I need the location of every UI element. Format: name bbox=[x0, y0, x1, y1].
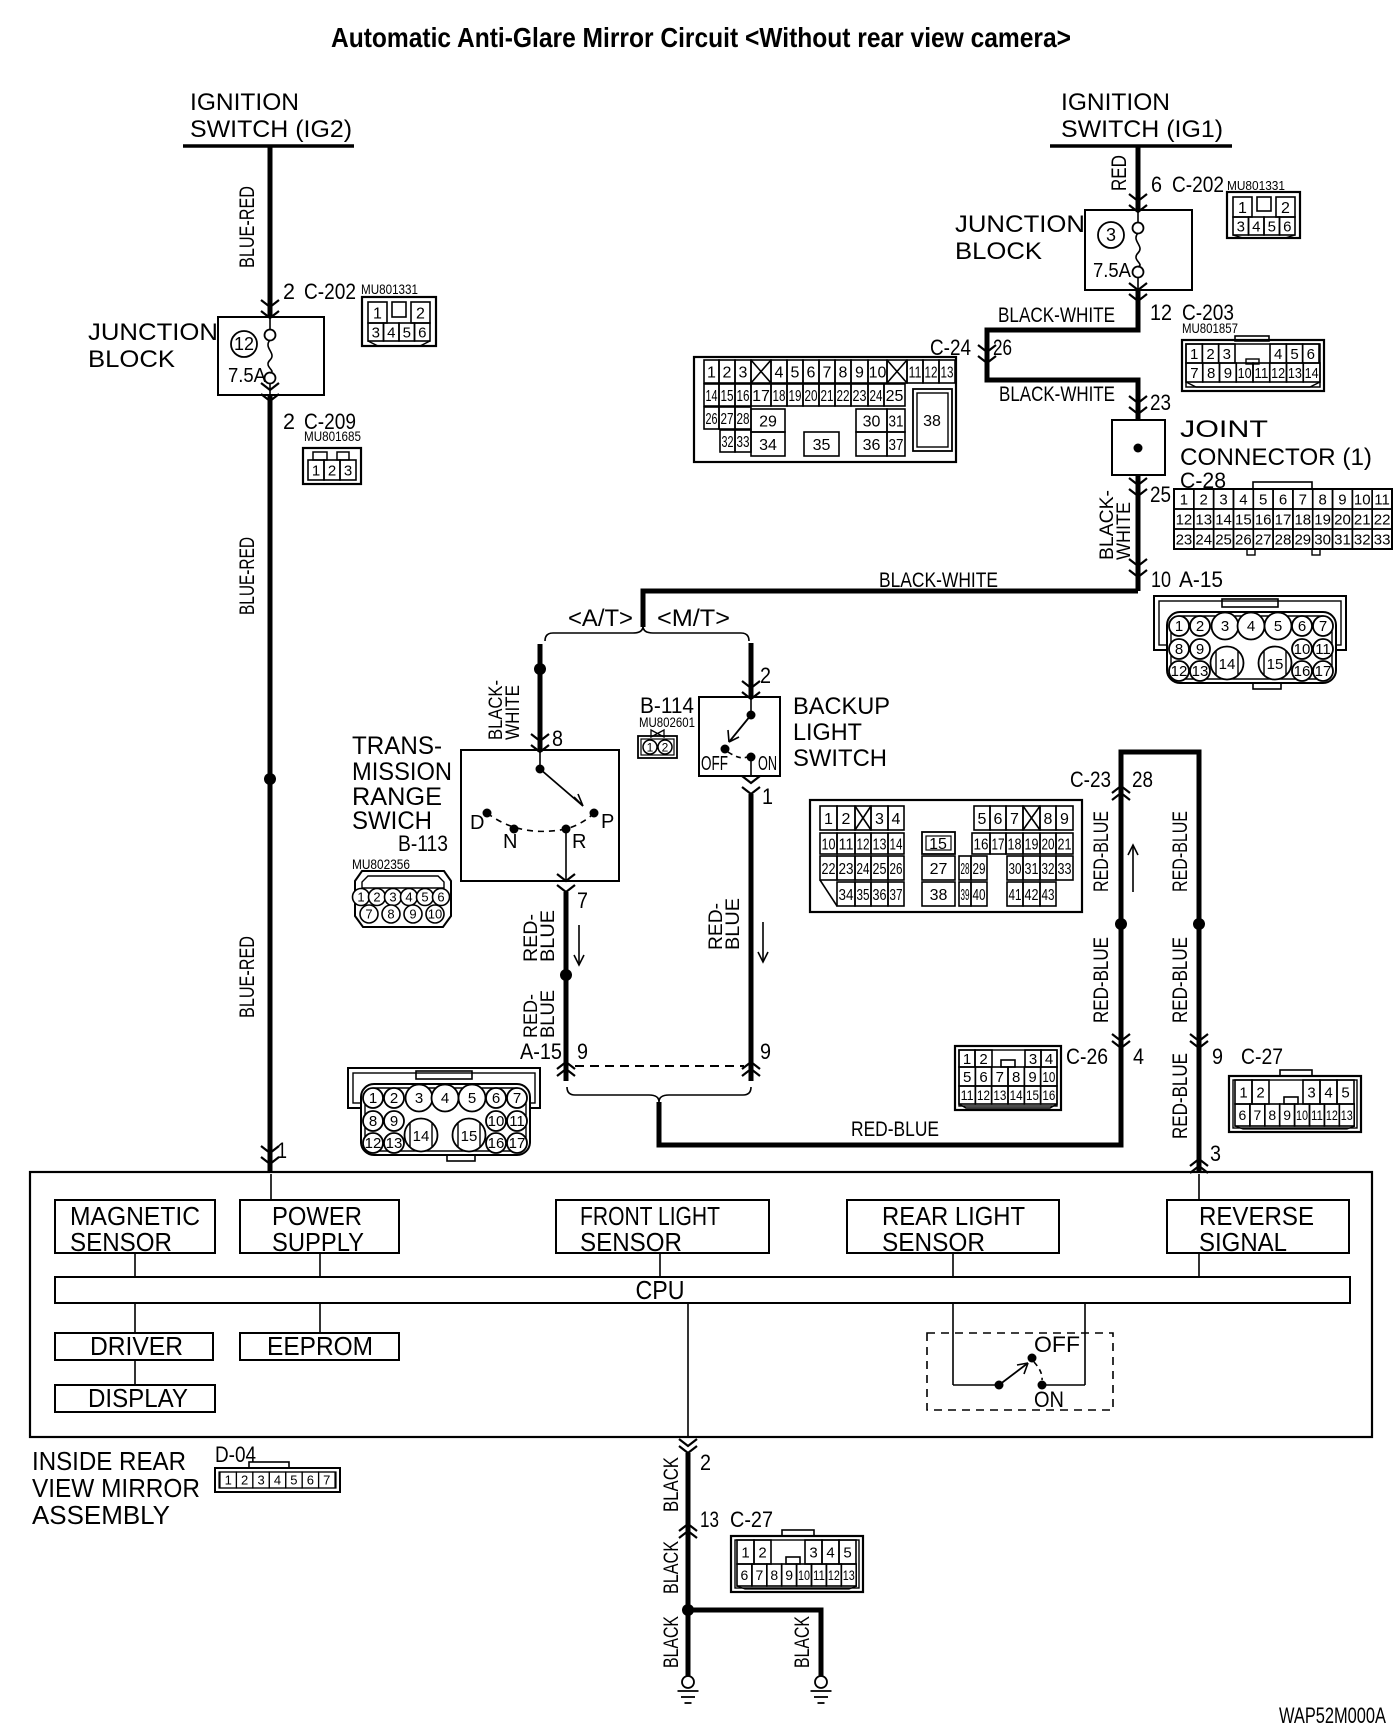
svg-text:8: 8 bbox=[770, 1567, 778, 1583]
svg-text:7: 7 bbox=[513, 1090, 521, 1107]
svg-text:11: 11 bbox=[1315, 641, 1331, 658]
svg-text:WAP52M000A: WAP52M000A bbox=[1279, 1703, 1386, 1728]
svg-text:1: 1 bbox=[357, 890, 364, 905]
svg-text:7.5A: 7.5A bbox=[1093, 260, 1132, 282]
svg-text:13: 13 bbox=[1192, 663, 1209, 680]
svg-text:23: 23 bbox=[1176, 531, 1193, 548]
svg-text:24: 24 bbox=[857, 861, 870, 878]
svg-text:1: 1 bbox=[225, 1473, 232, 1488]
svg-text:6: 6 bbox=[1279, 491, 1287, 508]
svg-text:12: 12 bbox=[1150, 300, 1172, 325]
svg-text:2: 2 bbox=[1196, 618, 1204, 635]
svg-text:8: 8 bbox=[552, 726, 563, 751]
svg-text:MU801331: MU801331 bbox=[1227, 178, 1285, 193]
svg-text:37: 37 bbox=[889, 437, 904, 454]
svg-text:N: N bbox=[503, 831, 517, 853]
svg-text:26: 26 bbox=[1235, 531, 1252, 548]
svg-text:7: 7 bbox=[1319, 618, 1327, 635]
svg-text:25: 25 bbox=[1150, 482, 1171, 507]
svg-text:22: 22 bbox=[822, 861, 836, 878]
svg-text:6: 6 bbox=[979, 1069, 987, 1086]
svg-text:CONNECTOR (1): CONNECTOR (1) bbox=[1180, 444, 1372, 471]
svg-text:7: 7 bbox=[755, 1567, 763, 1583]
svg-text:12: 12 bbox=[925, 364, 938, 381]
svg-text:34: 34 bbox=[839, 887, 854, 904]
svg-text:1: 1 bbox=[963, 1051, 971, 1068]
svg-text:BLUE-RED: BLUE-RED bbox=[236, 936, 259, 1018]
svg-text:BLACK: BLACK bbox=[660, 1457, 683, 1512]
svg-text:1: 1 bbox=[369, 1090, 377, 1107]
svg-text:3: 3 bbox=[1210, 1141, 1221, 1166]
svg-text:2: 2 bbox=[283, 279, 295, 304]
svg-text:4: 4 bbox=[892, 811, 901, 828]
svg-text:MU801685: MU801685 bbox=[304, 428, 361, 444]
svg-text:19: 19 bbox=[789, 388, 802, 405]
svg-text:1: 1 bbox=[312, 462, 320, 479]
svg-text:41: 41 bbox=[1009, 887, 1022, 904]
svg-text:32: 32 bbox=[1354, 531, 1371, 548]
svg-text:1: 1 bbox=[277, 1138, 287, 1163]
svg-text:27: 27 bbox=[1255, 531, 1272, 548]
svg-text:Automatic Anti-Glare Mirror Ci: Automatic Anti-Glare Mirror Circuit <Wit… bbox=[331, 22, 1071, 53]
svg-text:13: 13 bbox=[700, 1507, 719, 1532]
svg-text:BLUE-RED: BLUE-RED bbox=[236, 537, 259, 615]
svg-text:9: 9 bbox=[1028, 1069, 1036, 1086]
svg-text:11: 11 bbox=[909, 364, 922, 381]
svg-text:6: 6 bbox=[1151, 172, 1162, 197]
svg-text:10: 10 bbox=[428, 907, 442, 922]
svg-text:2: 2 bbox=[760, 663, 771, 688]
svg-text:7: 7 bbox=[577, 888, 588, 913]
svg-text:1: 1 bbox=[707, 364, 716, 381]
svg-text:C-23: C-23 bbox=[1070, 767, 1111, 792]
svg-text:ASSEMBLY: ASSEMBLY bbox=[32, 1500, 170, 1530]
svg-text:DISPLAY: DISPLAY bbox=[88, 1383, 188, 1413]
svg-text:8: 8 bbox=[369, 1113, 377, 1130]
svg-text:4: 4 bbox=[1045, 1051, 1053, 1068]
svg-text:9: 9 bbox=[785, 1567, 793, 1583]
svg-text:A-15: A-15 bbox=[1179, 567, 1223, 592]
svg-text:4: 4 bbox=[1252, 218, 1260, 235]
svg-text:SENSOR: SENSOR bbox=[70, 1227, 172, 1257]
svg-text:6: 6 bbox=[741, 1567, 749, 1583]
svg-text:16: 16 bbox=[737, 388, 750, 405]
svg-text:4: 4 bbox=[405, 890, 412, 905]
svg-text:MU802356: MU802356 bbox=[352, 856, 410, 872]
svg-text:10: 10 bbox=[869, 364, 887, 381]
svg-text:2: 2 bbox=[390, 1090, 398, 1107]
svg-text:15: 15 bbox=[1267, 656, 1284, 673]
svg-text:16: 16 bbox=[488, 1135, 505, 1152]
svg-text:3: 3 bbox=[1219, 491, 1227, 508]
svg-text:RED-BLUE: RED-BLUE bbox=[851, 1118, 939, 1141]
svg-text:22: 22 bbox=[1374, 511, 1391, 528]
svg-text:39: 39 bbox=[961, 887, 970, 904]
svg-text:14: 14 bbox=[413, 1128, 430, 1145]
svg-text:BLUE: BLUE bbox=[538, 990, 559, 1038]
svg-text:IGNITION: IGNITION bbox=[190, 89, 299, 116]
svg-text:SUPPLY: SUPPLY bbox=[272, 1227, 364, 1257]
svg-text:24: 24 bbox=[870, 388, 883, 405]
svg-text:5: 5 bbox=[978, 811, 987, 828]
svg-text:5: 5 bbox=[1259, 491, 1267, 508]
svg-text:B-113: B-113 bbox=[398, 831, 448, 856]
svg-text:RED-BLUE: RED-BLUE bbox=[1169, 1053, 1192, 1139]
svg-text:2: 2 bbox=[723, 364, 732, 381]
svg-text:14: 14 bbox=[706, 388, 718, 405]
svg-text:5: 5 bbox=[791, 364, 800, 381]
svg-text:10: 10 bbox=[1042, 1069, 1055, 1086]
svg-text:13: 13 bbox=[1288, 365, 1302, 382]
svg-text:28: 28 bbox=[1132, 767, 1153, 792]
svg-text:31: 31 bbox=[1025, 861, 1039, 878]
svg-text:7: 7 bbox=[1010, 811, 1019, 828]
svg-text:9: 9 bbox=[1283, 1107, 1291, 1123]
svg-text:17: 17 bbox=[752, 388, 770, 405]
svg-text:31: 31 bbox=[889, 413, 904, 430]
svg-text:IGNITION: IGNITION bbox=[1061, 89, 1170, 116]
svg-text:10: 10 bbox=[822, 836, 836, 853]
svg-text:RED: RED bbox=[1108, 155, 1131, 191]
svg-text:25: 25 bbox=[886, 388, 904, 405]
svg-text:13: 13 bbox=[873, 836, 887, 853]
svg-text:13: 13 bbox=[941, 364, 954, 381]
svg-text:12: 12 bbox=[977, 1087, 990, 1103]
svg-text:2: 2 bbox=[373, 890, 380, 905]
svg-text:38: 38 bbox=[930, 887, 948, 904]
svg-text:6: 6 bbox=[807, 364, 816, 381]
svg-text:5: 5 bbox=[421, 890, 428, 905]
svg-text:RED-BLUE: RED-BLUE bbox=[1090, 811, 1113, 892]
svg-text:C-202: C-202 bbox=[1172, 172, 1224, 197]
svg-text:BLOCK: BLOCK bbox=[88, 346, 175, 373]
svg-text:35: 35 bbox=[857, 887, 870, 904]
svg-text:9: 9 bbox=[760, 1039, 771, 1064]
svg-text:6: 6 bbox=[437, 890, 444, 905]
svg-text:3: 3 bbox=[1106, 225, 1116, 245]
svg-text:13: 13 bbox=[993, 1087, 1006, 1103]
svg-text:RED-BLUE: RED-BLUE bbox=[1090, 937, 1113, 1023]
svg-text:P: P bbox=[601, 811, 614, 833]
svg-text:22: 22 bbox=[837, 388, 850, 405]
svg-text:8: 8 bbox=[1268, 1107, 1276, 1123]
svg-text:JUNCTION: JUNCTION bbox=[88, 319, 218, 346]
svg-text:18: 18 bbox=[773, 388, 786, 405]
svg-text:7: 7 bbox=[365, 907, 372, 922]
svg-text:36: 36 bbox=[863, 437, 881, 454]
svg-text:3: 3 bbox=[1307, 1084, 1315, 1101]
svg-text:10: 10 bbox=[1238, 365, 1252, 382]
svg-text:4: 4 bbox=[1324, 1084, 1332, 1101]
svg-text:38: 38 bbox=[923, 413, 941, 430]
svg-text:23: 23 bbox=[839, 861, 854, 878]
svg-text:C-27: C-27 bbox=[730, 1507, 773, 1532]
svg-text:2: 2 bbox=[662, 741, 669, 755]
svg-text:3: 3 bbox=[257, 1473, 264, 1488]
svg-text:14: 14 bbox=[890, 836, 903, 853]
svg-text:2: 2 bbox=[979, 1051, 987, 1068]
svg-text:31: 31 bbox=[1334, 531, 1351, 548]
svg-text:1: 1 bbox=[741, 1544, 749, 1561]
svg-text:8: 8 bbox=[1207, 365, 1215, 382]
svg-text:9: 9 bbox=[390, 1113, 398, 1130]
svg-text:BLUE: BLUE bbox=[538, 910, 559, 962]
svg-text:2: 2 bbox=[241, 1473, 248, 1488]
svg-text:6: 6 bbox=[1298, 618, 1306, 635]
svg-text:13: 13 bbox=[843, 1567, 855, 1583]
svg-text:19: 19 bbox=[1314, 511, 1331, 528]
svg-text:1: 1 bbox=[647, 741, 654, 755]
svg-text:2: 2 bbox=[1256, 1084, 1264, 1101]
svg-text:36: 36 bbox=[873, 887, 887, 904]
svg-text:9: 9 bbox=[855, 364, 864, 381]
svg-text:25: 25 bbox=[873, 861, 887, 878]
svg-text:4: 4 bbox=[775, 364, 784, 381]
svg-text:43: 43 bbox=[1042, 887, 1055, 904]
svg-text:2: 2 bbox=[758, 1544, 766, 1561]
svg-text:7: 7 bbox=[1190, 365, 1198, 382]
svg-text:3: 3 bbox=[415, 1090, 423, 1107]
svg-text:9: 9 bbox=[1212, 1044, 1223, 1069]
svg-text:1: 1 bbox=[824, 811, 833, 828]
svg-text:7: 7 bbox=[1253, 1107, 1261, 1123]
svg-text:3: 3 bbox=[1029, 1051, 1037, 1068]
svg-text:BLACK-WHITE: BLACK-WHITE bbox=[999, 383, 1115, 406]
svg-text:RED-BLUE: RED-BLUE bbox=[1169, 937, 1192, 1023]
svg-text:25: 25 bbox=[1215, 531, 1232, 548]
svg-text:JUNCTION: JUNCTION bbox=[955, 211, 1085, 238]
svg-text:INSIDE REAR: INSIDE REAR bbox=[32, 1446, 186, 1476]
svg-text:16: 16 bbox=[1042, 1087, 1055, 1103]
svg-text:11: 11 bbox=[839, 836, 854, 853]
svg-text:5: 5 bbox=[290, 1473, 297, 1488]
svg-text:10: 10 bbox=[798, 1567, 810, 1583]
svg-text:5: 5 bbox=[1274, 618, 1282, 635]
svg-text:DRIVER: DRIVER bbox=[90, 1331, 183, 1361]
svg-text:19: 19 bbox=[1025, 836, 1039, 853]
svg-text:33: 33 bbox=[737, 434, 750, 451]
svg-text:26: 26 bbox=[993, 335, 1012, 360]
svg-text:10: 10 bbox=[1354, 491, 1371, 508]
svg-text:11: 11 bbox=[509, 1113, 525, 1130]
svg-text:11: 11 bbox=[813, 1567, 825, 1583]
svg-text:16: 16 bbox=[1294, 663, 1311, 680]
svg-text:4: 4 bbox=[1247, 618, 1255, 635]
svg-text:<A/T>: <A/T> bbox=[568, 605, 633, 632]
svg-text:2: 2 bbox=[416, 305, 425, 322]
svg-text:3: 3 bbox=[372, 324, 380, 341]
svg-text:10: 10 bbox=[1296, 1107, 1308, 1123]
svg-text:37: 37 bbox=[890, 887, 903, 904]
svg-text:27: 27 bbox=[930, 861, 948, 878]
svg-text:4: 4 bbox=[826, 1544, 834, 1561]
svg-text:18: 18 bbox=[1008, 836, 1022, 853]
svg-text:7: 7 bbox=[823, 364, 832, 381]
svg-text:EEPROM: EEPROM bbox=[267, 1331, 373, 1361]
svg-text:BLACK-WHITE: BLACK-WHITE bbox=[879, 569, 998, 592]
svg-text:1: 1 bbox=[1239, 1084, 1247, 1101]
svg-text:WHITE: WHITE bbox=[1114, 502, 1135, 560]
svg-text:10: 10 bbox=[1151, 567, 1171, 592]
svg-text:9: 9 bbox=[577, 1039, 588, 1064]
svg-text:20: 20 bbox=[1042, 836, 1055, 853]
svg-text:7: 7 bbox=[1299, 491, 1307, 508]
svg-text:ON: ON bbox=[1034, 1387, 1064, 1412]
svg-text:14: 14 bbox=[1305, 365, 1319, 382]
svg-text:5: 5 bbox=[403, 324, 411, 341]
svg-text:24: 24 bbox=[1195, 531, 1212, 548]
svg-text:27: 27 bbox=[721, 411, 734, 428]
svg-text:15: 15 bbox=[1235, 511, 1252, 528]
svg-text:13: 13 bbox=[1341, 1107, 1353, 1123]
svg-text:8: 8 bbox=[387, 907, 394, 922]
svg-text:MU801857: MU801857 bbox=[1182, 320, 1238, 336]
svg-text:1: 1 bbox=[762, 784, 773, 809]
svg-text:SWITCH (IG2): SWITCH (IG2) bbox=[190, 116, 352, 143]
svg-text:8: 8 bbox=[1044, 811, 1053, 828]
svg-text:5: 5 bbox=[843, 1544, 851, 1561]
svg-text:12: 12 bbox=[1171, 663, 1188, 680]
svg-text:6: 6 bbox=[1307, 346, 1315, 363]
svg-text:28: 28 bbox=[961, 861, 970, 878]
svg-text:3: 3 bbox=[344, 462, 352, 479]
svg-text:12: 12 bbox=[234, 334, 254, 354]
svg-text:32: 32 bbox=[1042, 861, 1055, 878]
svg-text:OFF: OFF bbox=[1034, 1332, 1080, 1357]
svg-text:10: 10 bbox=[1294, 641, 1311, 658]
svg-text:12: 12 bbox=[857, 836, 870, 853]
svg-text:4: 4 bbox=[387, 324, 395, 341]
svg-text:6: 6 bbox=[418, 324, 426, 341]
svg-text:9: 9 bbox=[1338, 491, 1346, 508]
svg-text:34: 34 bbox=[759, 437, 777, 454]
svg-text:5: 5 bbox=[1268, 218, 1276, 235]
svg-text:BACKUP: BACKUP bbox=[793, 693, 890, 720]
svg-text:1: 1 bbox=[1238, 200, 1247, 217]
svg-text:SIGNAL: SIGNAL bbox=[1199, 1227, 1287, 1257]
svg-text:16: 16 bbox=[1255, 511, 1272, 528]
svg-text:21: 21 bbox=[1058, 836, 1072, 853]
svg-text:5: 5 bbox=[963, 1069, 971, 1086]
svg-text:29: 29 bbox=[1294, 531, 1311, 548]
svg-text:20: 20 bbox=[1334, 511, 1351, 528]
svg-text:SENSOR: SENSOR bbox=[882, 1227, 985, 1257]
svg-text:3: 3 bbox=[809, 1544, 817, 1561]
svg-text:3: 3 bbox=[389, 890, 396, 905]
svg-text:C-26: C-26 bbox=[1066, 1044, 1108, 1069]
svg-text:C-202: C-202 bbox=[304, 279, 356, 304]
svg-text:BLACK: BLACK bbox=[660, 1541, 683, 1594]
svg-text:15: 15 bbox=[461, 1128, 478, 1145]
svg-text:16: 16 bbox=[974, 836, 989, 853]
svg-text:2: 2 bbox=[1206, 346, 1214, 363]
svg-text:9: 9 bbox=[1060, 811, 1069, 828]
svg-text:ON: ON bbox=[758, 753, 777, 775]
svg-text:12: 12 bbox=[1271, 365, 1285, 382]
svg-text:2: 2 bbox=[1200, 491, 1208, 508]
svg-text:20: 20 bbox=[805, 388, 818, 405]
svg-text:8: 8 bbox=[1012, 1069, 1020, 1086]
svg-text:32: 32 bbox=[722, 434, 734, 451]
svg-text:6: 6 bbox=[307, 1473, 314, 1488]
svg-text:5: 5 bbox=[1341, 1084, 1349, 1101]
svg-text:BLACK: BLACK bbox=[791, 1616, 814, 1668]
svg-text:6: 6 bbox=[492, 1090, 500, 1107]
svg-text:29: 29 bbox=[973, 861, 986, 878]
svg-text:4: 4 bbox=[1274, 346, 1282, 363]
svg-text:30: 30 bbox=[1009, 861, 1022, 878]
svg-text:SWITCH: SWITCH bbox=[793, 745, 887, 772]
svg-text:30: 30 bbox=[1314, 531, 1331, 548]
svg-text:13: 13 bbox=[1195, 511, 1212, 528]
svg-text:10: 10 bbox=[488, 1113, 505, 1130]
svg-text:WHITE: WHITE bbox=[503, 685, 524, 740]
svg-text:4: 4 bbox=[1239, 491, 1247, 508]
svg-text:8: 8 bbox=[1318, 491, 1326, 508]
svg-text:9: 9 bbox=[1224, 365, 1232, 382]
svg-text:9: 9 bbox=[1196, 641, 1204, 658]
svg-text:17: 17 bbox=[509, 1135, 526, 1152]
svg-text:23: 23 bbox=[1150, 390, 1171, 415]
svg-text:28: 28 bbox=[1275, 531, 1292, 548]
svg-text:3: 3 bbox=[1237, 218, 1245, 235]
svg-text:<M/T>: <M/T> bbox=[657, 605, 730, 632]
svg-text:33: 33 bbox=[1374, 531, 1391, 548]
svg-text:D: D bbox=[470, 812, 484, 834]
svg-text:4: 4 bbox=[274, 1473, 281, 1488]
svg-text:5: 5 bbox=[468, 1090, 476, 1107]
svg-text:4: 4 bbox=[1133, 1044, 1144, 1069]
svg-text:15: 15 bbox=[929, 836, 947, 853]
svg-text:9: 9 bbox=[409, 907, 416, 922]
svg-text:BLUE-RED: BLUE-RED bbox=[236, 186, 259, 268]
svg-text:17: 17 bbox=[992, 836, 1005, 853]
svg-text:SWITCH (IG1): SWITCH (IG1) bbox=[1061, 116, 1223, 143]
svg-text:C-27: C-27 bbox=[1241, 1044, 1283, 1069]
svg-text:7: 7 bbox=[323, 1473, 330, 1488]
svg-text:BLOCK: BLOCK bbox=[955, 238, 1042, 265]
svg-text:21: 21 bbox=[1354, 511, 1371, 528]
svg-text:11: 11 bbox=[1374, 491, 1390, 508]
svg-text:1: 1 bbox=[373, 305, 382, 322]
svg-text:D-04: D-04 bbox=[215, 1442, 256, 1467]
svg-text:21: 21 bbox=[821, 388, 834, 405]
svg-text:12: 12 bbox=[1326, 1107, 1338, 1123]
svg-text:BLUE: BLUE bbox=[723, 898, 744, 950]
svg-text:JOINT: JOINT bbox=[1180, 416, 1268, 443]
svg-text:40: 40 bbox=[973, 887, 986, 904]
svg-text:TRANS-: TRANS- bbox=[352, 732, 442, 760]
svg-text:5: 5 bbox=[1290, 346, 1298, 363]
svg-text:2: 2 bbox=[842, 811, 851, 828]
svg-text:11: 11 bbox=[1311, 1107, 1323, 1123]
svg-text:4: 4 bbox=[441, 1090, 449, 1107]
svg-text:BLACK: BLACK bbox=[660, 1616, 683, 1668]
svg-text:2: 2 bbox=[328, 462, 336, 479]
svg-text:A-15: A-15 bbox=[520, 1039, 562, 1064]
svg-text:VIEW MIRROR: VIEW MIRROR bbox=[32, 1473, 200, 1503]
svg-text:LIGHT: LIGHT bbox=[793, 719, 862, 746]
svg-text:14: 14 bbox=[1219, 656, 1236, 673]
svg-text:BLACK-WHITE: BLACK-WHITE bbox=[998, 304, 1115, 327]
svg-text:MISSION: MISSION bbox=[352, 758, 452, 786]
svg-text:6: 6 bbox=[994, 811, 1003, 828]
svg-text:MU801331: MU801331 bbox=[361, 281, 418, 297]
svg-text:23: 23 bbox=[853, 388, 867, 405]
svg-text:3: 3 bbox=[875, 811, 884, 828]
svg-text:7: 7 bbox=[996, 1069, 1004, 1086]
svg-text:11: 11 bbox=[961, 1087, 974, 1103]
